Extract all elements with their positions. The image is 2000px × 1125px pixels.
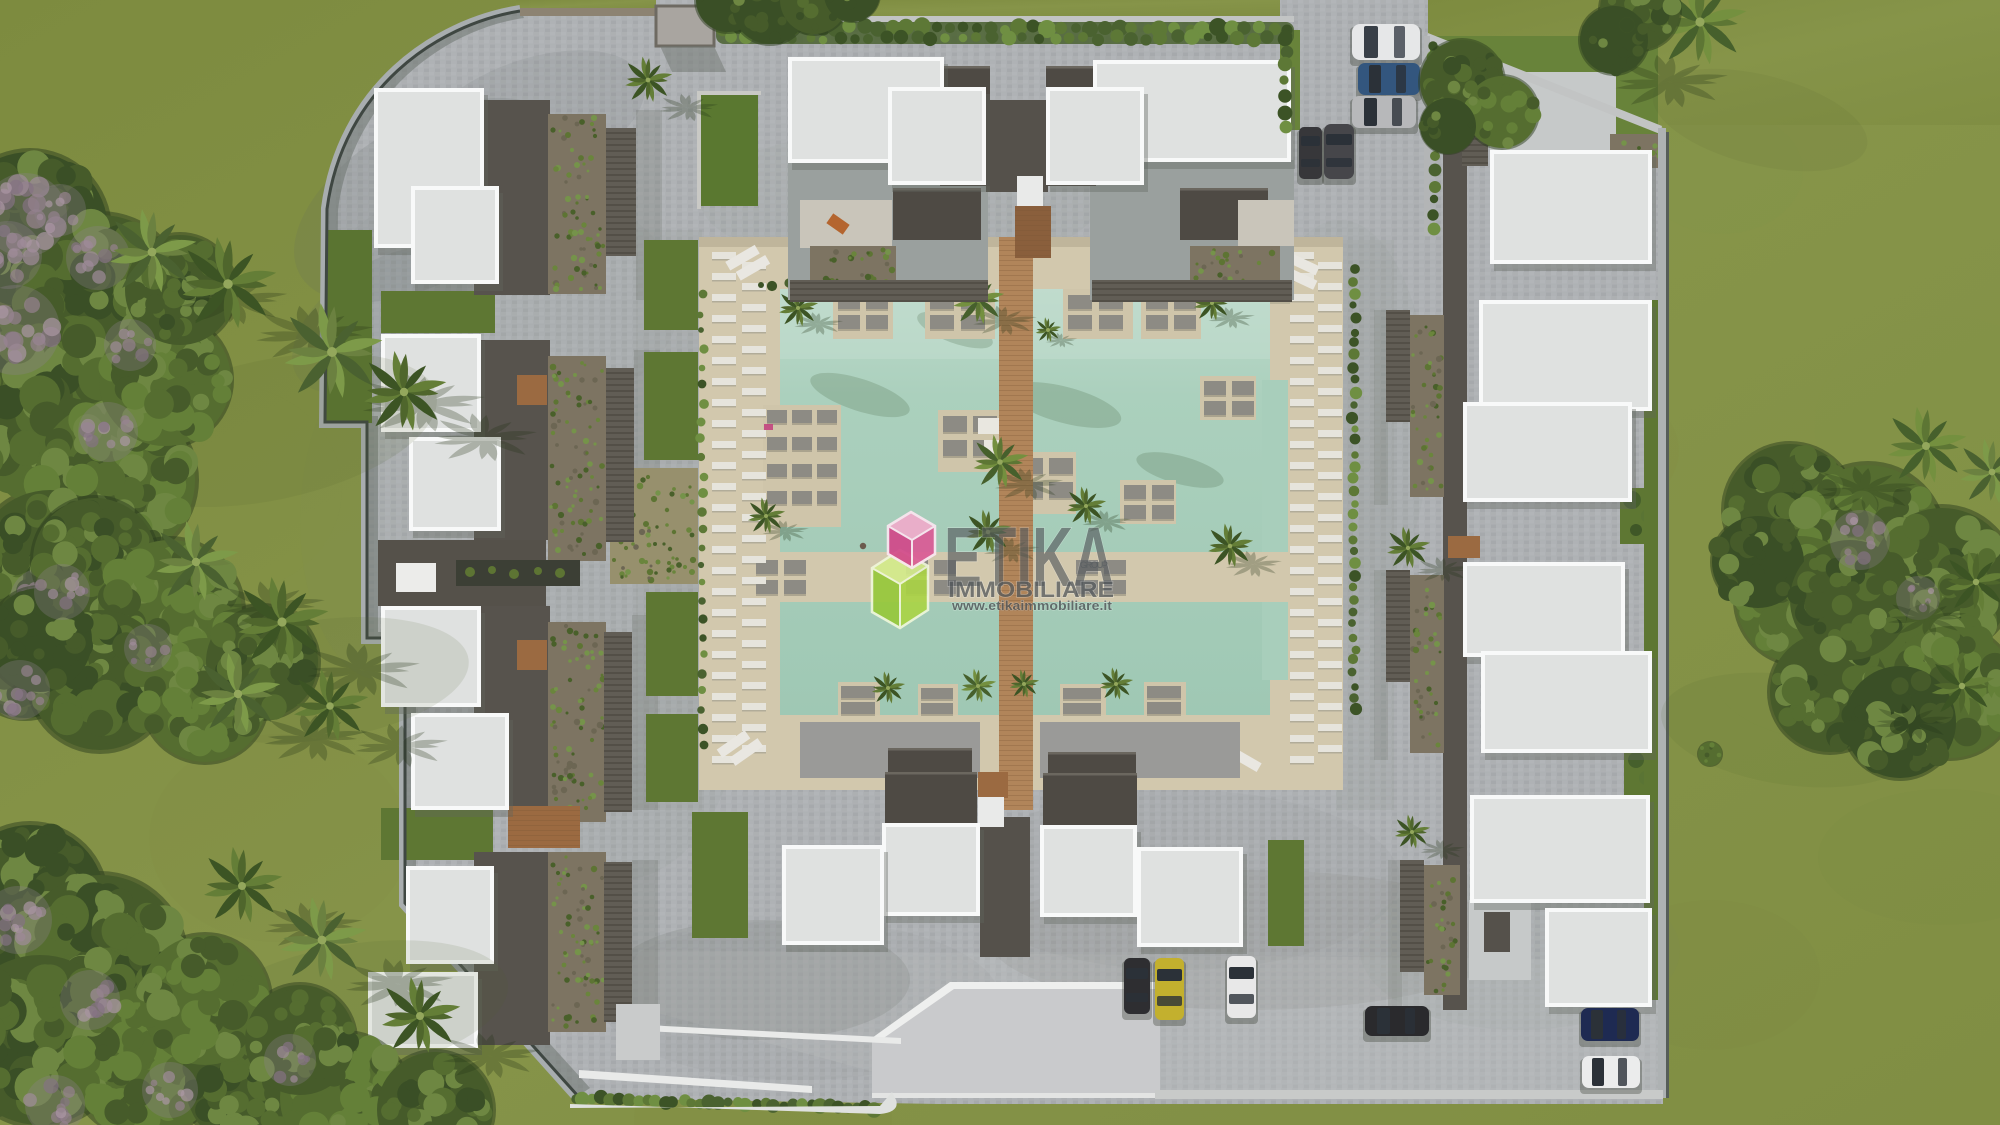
svg-text:GROUP: GROUP xyxy=(1080,560,1108,570)
svg-text:www.etikaimmobiliare.it: www.etikaimmobiliare.it xyxy=(951,598,1113,613)
